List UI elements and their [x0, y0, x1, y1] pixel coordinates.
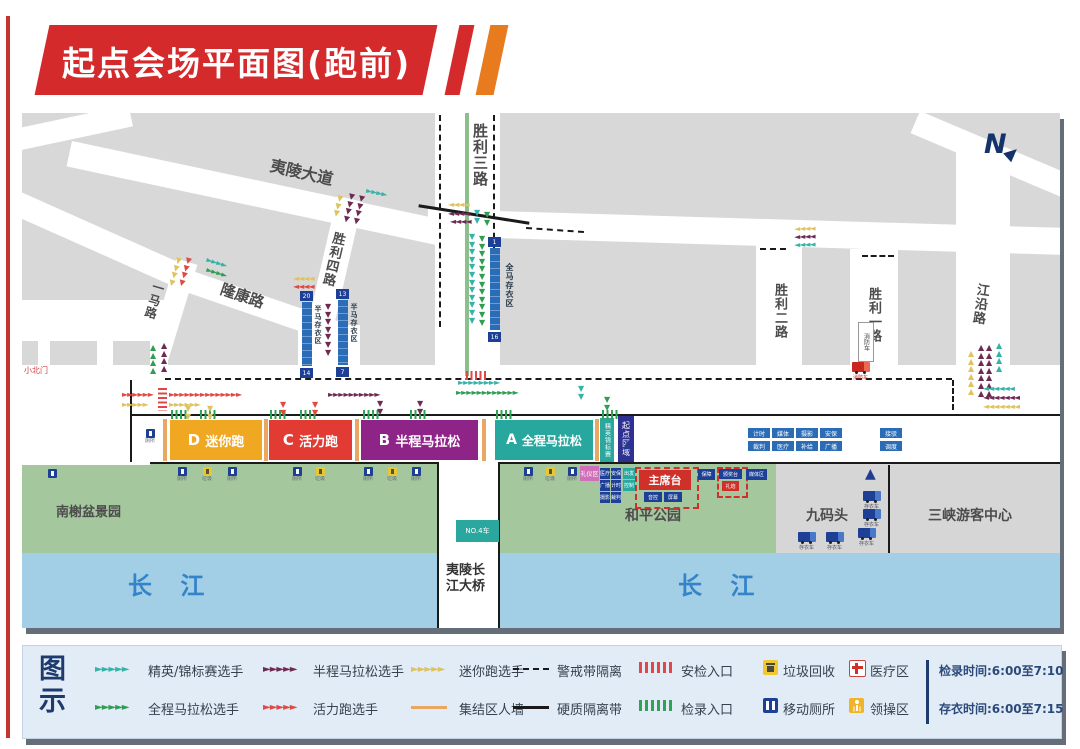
legend-checkin-label: 检录入口 [681, 699, 733, 718]
mini-facility-west: 厕所 [140, 429, 160, 445]
elite-flow-shengli3: ▼▼▼▼▼▼▼▼▼▼▼▼ [469, 233, 478, 373]
mini-caption: 厕所 [363, 476, 373, 483]
storage-truck-icon [858, 528, 876, 538]
page-left-accent [6, 16, 10, 738]
legend-elite-arrows: ►►►►► [95, 664, 128, 675]
cordon-dash-right-end [952, 380, 954, 410]
banner-stripe-red [445, 25, 475, 95]
legend-time-checkin: 检录时间:6:00至7:10 [939, 662, 1064, 679]
venue-map: NO.4车 夷陵长 江大桥 南榭盆景园 和平公园 九码头 三峡游客中心 长 江 … [22, 113, 1060, 628]
full-storage-top-tag: 1 [488, 237, 501, 247]
truck-caption: 存衣车 [799, 544, 814, 551]
road-box-pair-2: 调度 [880, 441, 902, 451]
stage-right-label: 保障 [701, 471, 711, 478]
legend-half-label: 半程马拉松选手 [313, 661, 404, 680]
corral-b-letter: B [379, 431, 390, 449]
bridge-tag: NO.4车 [456, 520, 499, 542]
trash-icon [546, 467, 555, 476]
mini-flow-west-entry: ►►►►► [122, 401, 148, 409]
toilet-icon [364, 467, 373, 476]
park-box-1: 医疗 [600, 468, 610, 479]
cordon-dash-main [165, 378, 952, 380]
fun-dive-c1: ▼▼ [280, 401, 289, 416]
mini-facility-10: 垃圾 [540, 467, 560, 483]
park-teal-2: 控制 [623, 480, 635, 491]
mini-facility-6: 厕所 [358, 467, 378, 483]
legend-hard-label: 硬质隔离带 [557, 699, 622, 718]
elite-up-east: ▲▲▲▲ [996, 342, 1005, 372]
wall-bar-3 [355, 419, 359, 461]
label-xiaobeimen: 小北门 [24, 365, 48, 376]
park-box-label: 广播 [600, 482, 610, 489]
park-box-label: 裁判 [611, 494, 621, 501]
corral-d-letter: D [188, 431, 200, 449]
park-box-label: 医疗 [600, 470, 610, 477]
mini-caption: 垃圾 [387, 476, 397, 483]
label-wharf: 九码头 [806, 505, 848, 525]
fun-dive-c2: ▼▼ [312, 401, 321, 416]
road-box-r1-2: 媒体 [772, 428, 794, 438]
mini-caption: 厕所 [523, 476, 533, 483]
fun-flow-longkang: ◄◄◄◄ [293, 283, 314, 291]
toilet-icon [412, 467, 421, 476]
half-flow-storage-street: ▼▼▼▼▼▼▼ [325, 303, 334, 367]
label-river-right: 长 江 [678, 566, 764, 601]
road-box-r1-1: 计时 [748, 428, 770, 438]
security-ticks-west [158, 388, 167, 411]
road-box-r2-4: 广播 [820, 441, 842, 451]
stage-right-label: 媒体区 [749, 471, 764, 478]
mini-flow-east: ◄◄◄◄◄◄◄ [983, 403, 1019, 411]
elite-flow-northeast: ◄◄◄◄ [794, 241, 815, 250]
elite-zone: 精英锦标赛 [600, 418, 614, 462]
stage-sub-label: 屏幕 [668, 494, 678, 501]
shengli1-mouth-dash [862, 255, 894, 257]
half2-top-tag: 13 [336, 289, 349, 299]
full-dive-a: ▼▼ [604, 396, 613, 411]
fire-truck-caption: 消防车 [853, 374, 868, 381]
stage-right-label: 礼炮 [725, 483, 735, 490]
mini-facility-9: 厕所 [518, 467, 538, 483]
full-up-west: ▲▲▲▲ [150, 344, 159, 374]
full-storage-top-num: 1 [493, 239, 497, 246]
mini-caption: 垃圾 [315, 476, 325, 483]
legend-checkin-ticks [639, 700, 673, 711]
legend-fun-label: 活力跑选手 [313, 699, 378, 718]
compass-north-icon: N [984, 129, 1007, 160]
fun-flow-west-entry: ►►►►►► [122, 391, 153, 399]
corral-d-name: 迷你跑 [205, 431, 244, 450]
elite-dive: ▼▼ [578, 385, 587, 400]
road-box-r1-4: 安保 [820, 428, 842, 438]
road-box-label: 广播 [825, 442, 837, 451]
half2-bottom-num: 7 [341, 369, 345, 376]
wall-bar-2 [264, 419, 268, 461]
toilet-icon [228, 467, 237, 476]
road-box-label: 医疗 [777, 442, 789, 451]
toilet-icon [568, 467, 577, 476]
half-storage-bar-2 [338, 300, 348, 365]
park-box-5: 摄影 [600, 492, 610, 503]
mini-caption: 垃圾 [202, 476, 212, 483]
mini-dive-d2: ▼▼ [207, 405, 216, 420]
mini-caption: 厕所 [227, 476, 237, 483]
toilet-icon [146, 429, 155, 438]
full-storage-bottom-tag: 16 [488, 332, 501, 342]
bridge-edge-left [437, 462, 439, 628]
mini-facility-5: 垃圾 [310, 467, 330, 483]
road-box-pair-1: 接驳 [880, 428, 902, 438]
mini-facility-11: 厕所 [562, 467, 582, 483]
truck-caption: 存衣车 [827, 544, 842, 551]
full-storage-bar [490, 248, 500, 330]
full-turn-down: ▼▼ [484, 211, 493, 226]
shengli3-dash-left [439, 115, 441, 327]
road-box-r2-1: 裁判 [748, 441, 770, 451]
bridge-label-line2: 江大桥 [446, 579, 485, 595]
mini-facility-7: 垃圾 [382, 467, 402, 483]
trash-icon [316, 467, 325, 476]
stage-sub-1: 音控 [644, 492, 662, 502]
full-storage-bottom-num: 16 [491, 334, 499, 341]
stage-label: 主席台 [649, 472, 682, 488]
half-flow-main: ►►►►►►►►►► [328, 391, 380, 399]
full-storage-label: 全马存衣区 [504, 263, 515, 308]
fire-truck-sign: 消防车 [858, 322, 874, 362]
mini-caption: 厕所 [292, 476, 302, 483]
trash-icon [203, 467, 212, 476]
mini-facility-1: 厕所 [172, 467, 192, 483]
storage-truck-icon [863, 491, 881, 501]
mini-up-east: ▲▲▲▲▲▲ [968, 350, 977, 412]
toilet-icon [48, 469, 57, 478]
stage-right-label: 颁奖台 [723, 471, 738, 478]
bridge-label: 夷陵长 江大桥 [446, 563, 485, 596]
stage-right-2: 颁奖台 [719, 469, 742, 479]
legend-security-label: 安检入口 [681, 661, 733, 680]
corral-c-name: 活力跑 [299, 431, 338, 450]
toilet-icon [763, 698, 778, 713]
label-shengli2: 胜利二路 [770, 283, 789, 339]
label-visitor-center: 三峡游客中心 [928, 505, 1012, 525]
legend-full-arrows: ►►►►► [95, 702, 128, 713]
road-box-label: 调度 [885, 442, 897, 451]
shengli2-mouth-dash [760, 248, 786, 250]
stage-right-4: 媒体区 [746, 469, 767, 480]
full-flow-main: ►►►►►►►►►►►► [456, 389, 518, 397]
fun-flow-main: ►►►►►►►►►►►►►► [169, 391, 241, 399]
truck-caption: 存衣车 [864, 521, 879, 528]
checkin-ticks-7 [496, 410, 513, 419]
fire-sign-text: 消防车 [862, 333, 871, 351]
half1-top-num: 20 [303, 293, 311, 300]
corral-c-letter: C [283, 431, 294, 449]
wall-bar-5 [595, 419, 599, 461]
half2-bottom-tag: 7 [336, 367, 349, 377]
road-yiling-west [67, 141, 475, 252]
mini-flow-junction: ◄◄◄◄ [448, 201, 469, 209]
trash-icon [763, 660, 778, 675]
stage-sub-label: 音控 [648, 494, 658, 501]
start-direction-arrow: ▲ [623, 439, 630, 450]
mini-dive-d1: ▼▼ [185, 405, 194, 420]
legend-hard-line [513, 706, 549, 709]
toilet-icon [524, 467, 533, 476]
toilet-icon [178, 467, 187, 476]
truck-caption: 存衣车 [859, 540, 874, 547]
legend-panel: 图示 ►►►►► 精英/锦标赛选手 ►►►►► 半程马拉松选手 ►►►►► 迷你… [22, 645, 1062, 739]
elite-flow-yiling: ►►►► [365, 187, 387, 199]
half-storage-label-2: 半马存衣区 [349, 303, 359, 343]
ceremony-box: 礼仪区 [580, 466, 599, 481]
park-box-2: 安保 [611, 468, 621, 479]
legend-divider [926, 660, 929, 724]
corral-c: C 活力跑 [269, 420, 352, 460]
corral-a: A 全程马拉松 [495, 420, 593, 460]
park-box-label: 摄影 [600, 494, 610, 501]
page-title: 起点会场平面图(跑前) [62, 37, 411, 85]
label-garden: 南榭盆景园 [56, 501, 121, 520]
stage-right-3: 礼炮 [722, 481, 739, 491]
half1-bottom-num: 14 [303, 370, 311, 377]
park-box-3: 广播 [600, 480, 610, 491]
park-top-barrier [150, 462, 1060, 464]
mini-caption: 厕所 [177, 476, 187, 483]
legend-cordon-line [513, 668, 549, 670]
wharf-center-divider [888, 465, 890, 553]
legend-elite-label: 精英/锦标赛选手 [148, 661, 243, 680]
road-box-label: 裁判 [753, 442, 765, 451]
stage-box: 主席台 [639, 470, 691, 490]
road-box-label: 摄影 [801, 429, 813, 438]
road-box-r1-3: 摄影 [796, 428, 818, 438]
wharf-direction-arrow: ▲ [865, 467, 875, 481]
legend-toilet-label: 移动厕所 [783, 699, 835, 718]
mini-caption: 厕所 [567, 476, 577, 483]
wall-bar-1 [163, 419, 167, 461]
half1-bottom-tag: 14 [300, 368, 313, 378]
half-storage-bar-1 [302, 302, 312, 366]
toilet-icon [293, 467, 302, 476]
half-flow-junction-2: ◄◄◄◄ [450, 218, 471, 226]
legend-half-arrows: ►►►►► [263, 664, 296, 675]
road-box-label: 补给 [801, 442, 813, 451]
storage-truck-icon [798, 532, 816, 542]
mini-facility-garden [42, 469, 62, 478]
label-river-left: 长 江 [128, 566, 214, 601]
bridge-label-line1: 夷陵长 [446, 563, 485, 579]
road-box-r2-2: 医疗 [772, 441, 794, 451]
mini-caption: 垃圾 [545, 476, 555, 483]
legend-mini-label: 迷你跑选手 [459, 661, 524, 680]
lead-exercise-icon [849, 698, 864, 713]
legend-trash-label: 垃圾回收 [783, 661, 835, 680]
storage-truck-icon [863, 509, 881, 519]
mini-facility-3: 厕所 [222, 467, 242, 483]
park-box-4: 计时 [611, 480, 621, 491]
park-box-6: 裁判 [611, 492, 621, 503]
full-flow-shengli3: ▼▼▼▼▼▼▼▼▼▼▼▼ [479, 235, 488, 375]
ceremony-label: 礼仪区 [580, 469, 598, 478]
elite-zone-label: 精英锦标赛 [603, 423, 612, 458]
legend-security-ticks [639, 662, 673, 673]
road-left-to-junction [22, 189, 180, 285]
bridge [438, 462, 500, 628]
legend-mini-arrows: ►►►►► [411, 664, 444, 675]
fire-truck-icon [852, 362, 870, 372]
half2-top-num: 13 [339, 291, 347, 298]
mini-facility-8: 厕所 [406, 467, 426, 483]
road-box-label: 媒体 [777, 429, 789, 438]
corral-b-name: 半程马拉松 [395, 431, 460, 450]
park-box-label: 计时 [611, 482, 621, 489]
half1-top-tag: 20 [300, 291, 313, 301]
park-teal-label: 控制 [624, 482, 634, 489]
park-teal-label: 出发 [624, 470, 634, 477]
half-up-west: ▲▲▲▲ [161, 342, 170, 372]
wall-bar-4 [482, 419, 486, 461]
half-dive-b2: ▼▼ [417, 400, 426, 415]
road-box-r2-3: 补给 [796, 441, 818, 451]
bridge-tag-label: NO.4车 [465, 526, 489, 536]
elite-flow-main: ►►►►►►►► [458, 379, 499, 387]
elite-turn-down: ▼▼ [474, 209, 483, 224]
legend-title: 图示 [39, 654, 71, 719]
medical-cross-icon [849, 660, 866, 677]
road-box-label: 计时 [753, 429, 765, 438]
bridge-edge-right [498, 462, 500, 628]
page: 起点会场平面图(跑前) N [0, 0, 1080, 749]
corral-d: D 迷你跑 [170, 420, 262, 460]
mini-facility-2: 垃圾 [197, 467, 217, 483]
legend-fun-arrows: ►►►►► [263, 702, 296, 713]
trash-icon [388, 467, 397, 476]
half-dive-b1: ▼▼ [377, 400, 386, 415]
label-shengli3: 胜利三路 [470, 123, 491, 187]
legend-lead-label: 领操区 [870, 699, 909, 718]
mini-facility-4: 厕所 [287, 467, 307, 483]
stage-sub-2: 屏幕 [664, 492, 682, 502]
mini-caption: 厕所 [145, 438, 155, 445]
storage-truck-icon [826, 532, 844, 542]
road-box-label: 接驳 [885, 429, 897, 438]
elite-flow-east: ◄◄◄◄◄◄ [983, 385, 1014, 393]
road-box-label: 安保 [825, 429, 837, 438]
park-box-label: 安保 [611, 470, 621, 477]
half-storage-label-1: 半马存衣区 [313, 305, 323, 345]
half-flow-east: ◄◄◄◄◄◄◄ [983, 394, 1019, 402]
legend-time-storage: 存衣时间:6:00至7:15 [939, 700, 1064, 717]
park-teal-1: 出发 [623, 468, 635, 479]
corral-a-letter: A [506, 432, 517, 448]
corral-a-name: 全程马拉松 [522, 432, 582, 449]
legend-medical-label: 医疗区 [870, 661, 909, 680]
legend-full-label: 全程马拉松选手 [148, 699, 239, 718]
corral-b: B 半程马拉松 [361, 420, 478, 460]
legend-wall-line [411, 706, 447, 709]
legend-cordon-label: 警戒带隔离 [557, 661, 622, 680]
banner-stripe-orange [476, 25, 509, 95]
mini-caption: 厕所 [411, 476, 421, 483]
stage-right-1: 保障 [698, 469, 715, 480]
